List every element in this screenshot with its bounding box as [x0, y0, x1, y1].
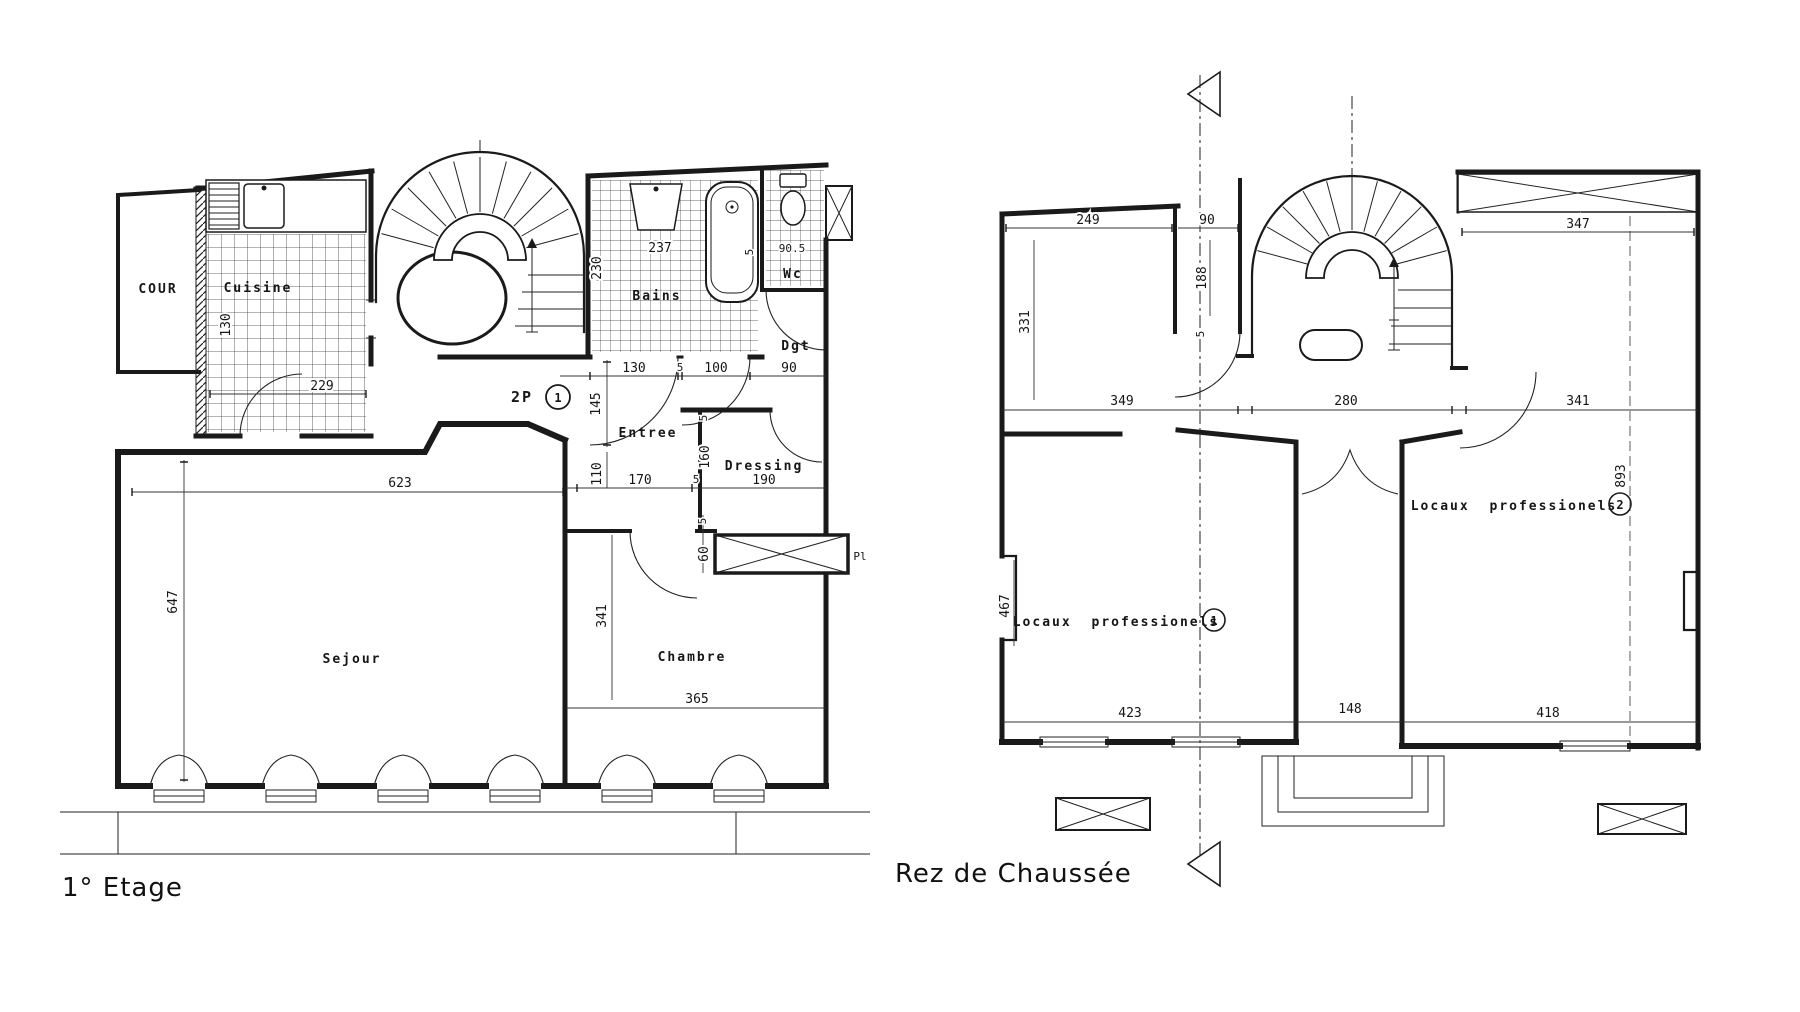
dim-hall-width: 170	[628, 473, 651, 488]
room-label-sejour: Sejour	[323, 652, 382, 667]
lobby-west-wall	[1178, 430, 1296, 742]
unit-label: 2P	[511, 388, 533, 406]
dim-sejour-depth: 647	[166, 590, 181, 613]
dim-jamb-a: 5	[677, 361, 684, 374]
dim-jamb-c: 5	[693, 473, 700, 486]
dim-span-left: 349	[1110, 394, 1133, 409]
locaux1-number: 1	[1210, 614, 1217, 628]
plan-title-ground-floor: Rez de Chaussée	[895, 859, 1132, 889]
dim-cuisine-width: 229	[310, 379, 333, 394]
stair-treads	[382, 158, 579, 248]
rdc-south-facade	[1002, 737, 1698, 834]
locaux2-number: 2	[1616, 498, 1623, 512]
entrance-step-2	[1278, 756, 1428, 812]
spiral-staircase-right	[1238, 96, 1466, 368]
stair-well-opening	[398, 252, 506, 344]
room-label-placard: Pl	[853, 550, 866, 563]
room-label-cour: COUR	[138, 282, 177, 297]
dim-bains-door: 100	[704, 361, 727, 376]
entrance-step-1	[1262, 756, 1444, 826]
faucet-icon	[262, 186, 267, 191]
dim-dressing-depth: 160	[698, 445, 713, 468]
dim-placard-depth: 60	[697, 546, 712, 562]
entrance-double-door-swing	[1302, 450, 1398, 494]
dim-bains-width: 237	[648, 241, 671, 256]
south-facade	[60, 755, 870, 854]
plan-title-first-floor: 1° Etage	[62, 873, 183, 903]
dim-rdc-jamb: 5	[1194, 331, 1207, 338]
room-label-chambre: Chambre	[658, 650, 727, 665]
window-sills	[154, 790, 764, 802]
plan-ground-floor: 249 331 90 188 5 347	[895, 72, 1698, 889]
dim-cuisine-depth: 130	[219, 313, 234, 336]
cuisine-door-jambs	[366, 300, 376, 338]
cuisine-west-wall-hatch	[196, 186, 206, 436]
cour-walls	[118, 190, 199, 372]
dim-bains-depth: 230	[590, 256, 605, 279]
room-label-locaux2: Locaux professionels	[1411, 499, 1618, 514]
dim-hall-depth: 110	[590, 462, 605, 485]
unit-number: 1	[554, 391, 561, 405]
stair-direction-arrow	[526, 243, 538, 332]
dim-span-center: 280	[1334, 394, 1357, 409]
room-label-dgt: Dgt	[781, 339, 810, 354]
rdc-stair-rail-hook	[1300, 330, 1362, 360]
stair-inner-rail	[434, 214, 526, 260]
chambre-door-swing	[630, 531, 697, 598]
dim-topleft-depth: 331	[1018, 310, 1033, 333]
plan-first-floor: COUR Cuisine 130 229	[60, 140, 870, 903]
stair-straight-treads	[515, 275, 584, 326]
dim-wc-width: 90.5	[779, 242, 806, 255]
dim-jamb-d: 5	[696, 518, 709, 525]
dim-passage-depth: 188	[1195, 266, 1210, 289]
dim-passage-width: 90	[1199, 213, 1215, 228]
room-label-cuisine: Cuisine	[224, 281, 293, 296]
dim-sejour-width: 623	[388, 476, 411, 491]
dim-dgt-width: 90	[781, 361, 797, 376]
room-label-bains: Bains	[632, 289, 681, 304]
room-label-locaux1: Locaux professionels	[1013, 615, 1220, 630]
dim-dressing-width: 190	[752, 473, 775, 488]
entrance-step-3	[1294, 756, 1412, 798]
floor-plan-drawing: COUR Cuisine 130 229	[0, 0, 1800, 1012]
dim-jamb-b: 5	[697, 415, 710, 422]
stair-arrow-head	[527, 238, 537, 248]
rdc-stair-inner-rail	[1306, 232, 1398, 278]
dim-chambre-width: 365	[685, 692, 708, 707]
dim-bay-left: 467	[998, 594, 1013, 617]
kitchen-sink-icon	[244, 184, 284, 228]
sidewalk-lines	[60, 812, 870, 854]
dressing-door-swing	[770, 410, 822, 462]
rdc-stair-treads	[1257, 178, 1446, 264]
dim-entree-depth: 145	[589, 392, 604, 415]
toilet-tank-icon	[780, 174, 806, 187]
dim-topleft-width: 249	[1076, 213, 1099, 228]
room-label-dressing: Dressing	[725, 459, 804, 474]
basin-faucet-icon	[654, 187, 659, 192]
stove-icon	[209, 183, 239, 229]
dim-stair-door: 130	[622, 361, 645, 376]
dim-bottom-right: 418	[1536, 706, 1559, 721]
french-door-swings	[150, 755, 768, 786]
room-label-wc: Wc	[783, 267, 803, 282]
dim-depth-total: 893	[1614, 464, 1629, 487]
floor-plan-sheet: COUR Cuisine 130 229	[0, 0, 1800, 1012]
bathtub-drain-dot	[730, 205, 733, 208]
section-marker-bottom-icon	[1188, 842, 1220, 886]
dim-topright-width: 347	[1566, 217, 1589, 232]
section-marker-top-icon	[1188, 72, 1220, 116]
dim-bottom-center: 148	[1338, 702, 1361, 717]
room-label-entree: Entree	[619, 426, 678, 441]
toilet-icon	[781, 191, 805, 225]
lobby-east-wall	[1402, 432, 1460, 742]
dim-span-right: 341	[1566, 394, 1589, 409]
dim-bottom-left: 423	[1118, 706, 1141, 721]
rdc-passage-door-swing	[1175, 332, 1240, 397]
dim-tub-edge: 5	[743, 249, 756, 256]
dim-chambre-depth: 341	[595, 604, 610, 627]
rdc-straight-treads	[1389, 290, 1452, 344]
spiral-staircase-left	[376, 140, 584, 344]
